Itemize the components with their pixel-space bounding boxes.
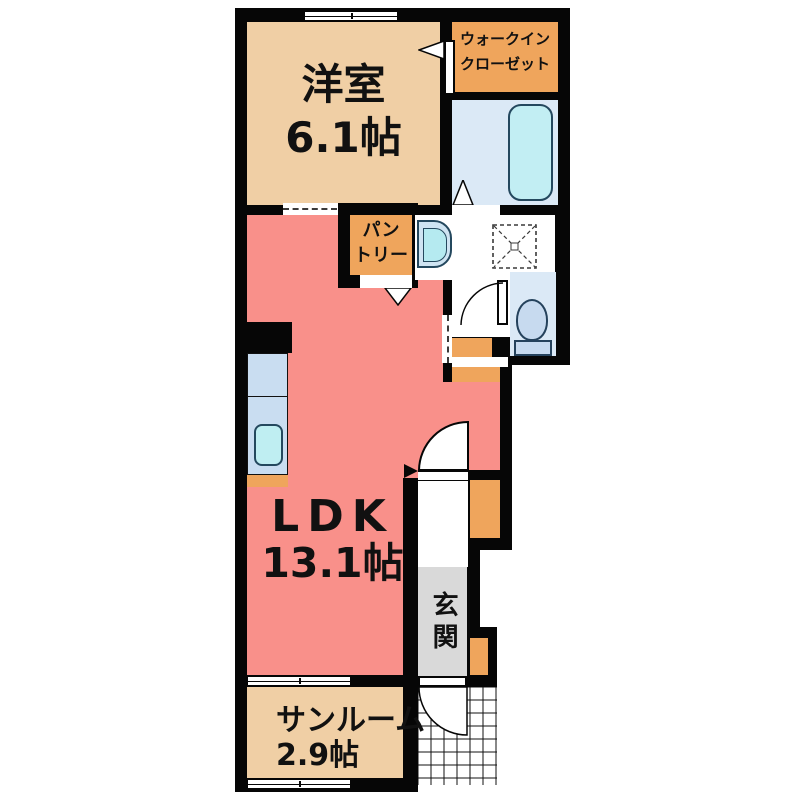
pantry-label-line1: パン [350, 220, 412, 242]
shoe-cabinet [470, 480, 500, 538]
washbasin-bowl [423, 228, 447, 262]
entrance-side-cabinet [470, 638, 488, 675]
sunroom-area: 2.9帖 [276, 740, 359, 772]
bathtub [508, 104, 553, 201]
bathroom-door-opening [452, 205, 500, 215]
storage-cabinet-upper [452, 338, 492, 357]
toilet-tank [514, 340, 552, 356]
wic-door-leaf [444, 40, 455, 95]
sunroom-label: サンルーム [276, 705, 425, 737]
bathroom-door-icon [452, 180, 474, 205]
western-room-area: 6.1帖 [247, 113, 440, 163]
window-western-top [305, 10, 397, 22]
toilet-door-swing-icon [459, 280, 504, 327]
kitchen-counter-divider [248, 396, 287, 397]
kitchen-wall-stub [238, 322, 292, 353]
sliding-door-ldk-dash [447, 315, 449, 363]
wic-door-arrow-icon [418, 40, 445, 60]
washing-machine-space [492, 224, 537, 269]
toilet-bowl [516, 299, 548, 341]
wic-label-line1: ウォークイン [452, 30, 558, 50]
threshold-arrow-icon [404, 464, 419, 478]
window-tick [299, 781, 301, 787]
pantry-label-line2: トリー [350, 245, 412, 267]
corridor [418, 470, 468, 567]
storage-gap [452, 357, 508, 367]
corridor-threshold-line [418, 480, 468, 481]
entrance-label: 玄関 [418, 580, 467, 665]
ldk-label: LDK [250, 493, 415, 541]
kitchen-sink [254, 424, 283, 466]
pantry-door-opening [360, 275, 412, 288]
window-ldk-sunroom [248, 675, 350, 687]
storage-cabinet-lower [452, 367, 500, 382]
kitchen-end-cabinet [247, 475, 288, 487]
ldk-door-swing-icon [417, 421, 469, 471]
floorplan-canvas: 洋室 6.1帖 ウォークイン クローゼット LDK 13.1帖 パン トリー [0, 0, 800, 800]
ldk-area: 13.1帖 [250, 541, 415, 587]
entry-door-leaf [418, 676, 467, 687]
sliding-door-ldk-hall [442, 315, 452, 363]
western-room-label: 洋室 [247, 60, 440, 110]
washbasin [417, 220, 452, 268]
pantry-door-icon [384, 288, 412, 306]
wic-label-line2: クローゼット [452, 55, 558, 75]
window-tick [351, 13, 353, 19]
entry-door-swing-icon [418, 687, 468, 737]
window-tick [299, 678, 301, 684]
window-sunroom-bottom [248, 778, 350, 790]
